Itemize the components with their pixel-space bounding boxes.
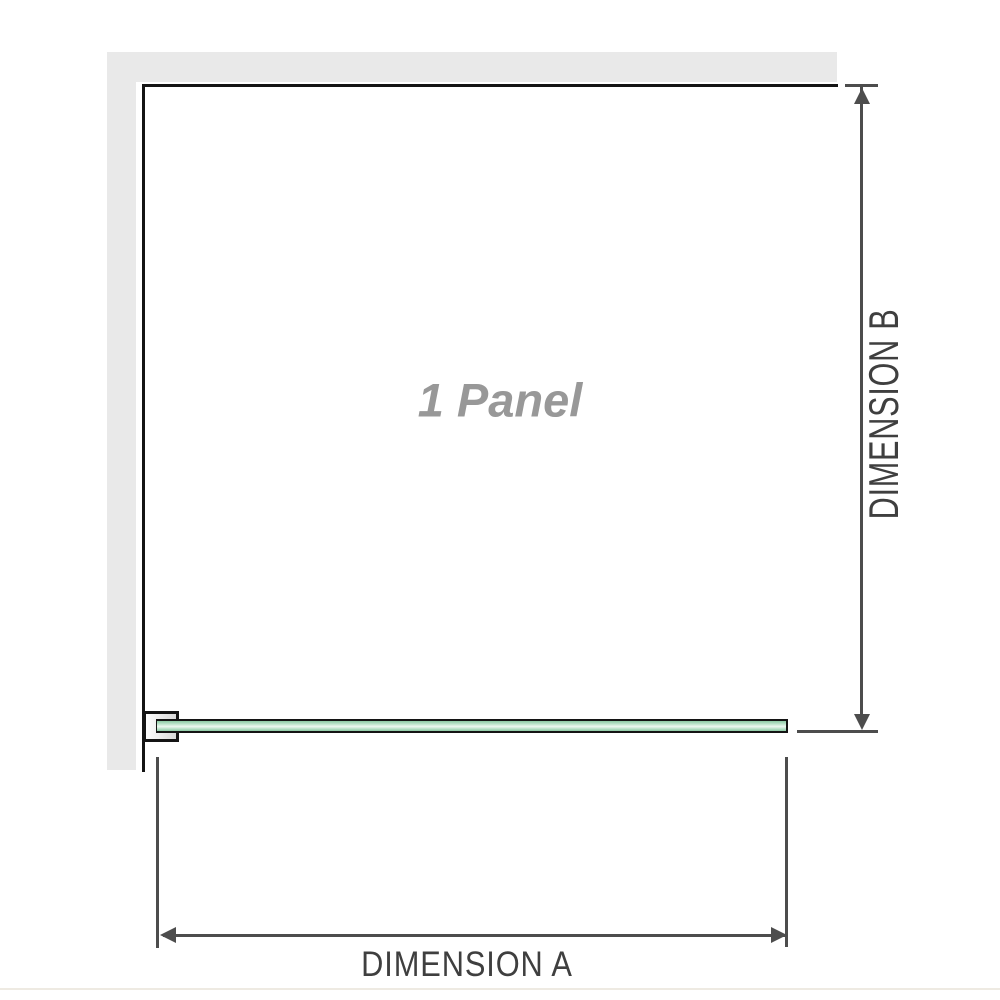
glass-panel	[156, 719, 788, 733]
arrow-up-icon	[854, 88, 870, 104]
panel-count-label: 1 Panel	[418, 373, 583, 428]
dimension-b-label: DIMENSION B	[860, 309, 908, 520]
dimension-a-line	[163, 934, 785, 937]
dimension-a-right-extension	[785, 757, 788, 947]
wall-left-strip	[107, 52, 136, 770]
arrow-right-icon	[771, 927, 787, 943]
panel-dimension-diagram: 1 Panel DIMENSION B DIMENSION A	[0, 0, 1000, 1000]
bottom-edge-rule	[0, 988, 1000, 990]
panel-outline-top-border	[142, 84, 838, 87]
arrow-left-icon	[160, 927, 176, 943]
dimension-a-left-extension	[156, 757, 159, 948]
wall-top-strip	[107, 52, 837, 82]
dimension-a-label: DIMENSION A	[361, 945, 573, 985]
arrow-down-icon	[854, 714, 870, 730]
panel-outline-left-border	[142, 84, 145, 772]
dimension-b-bottom-tick	[797, 730, 878, 733]
